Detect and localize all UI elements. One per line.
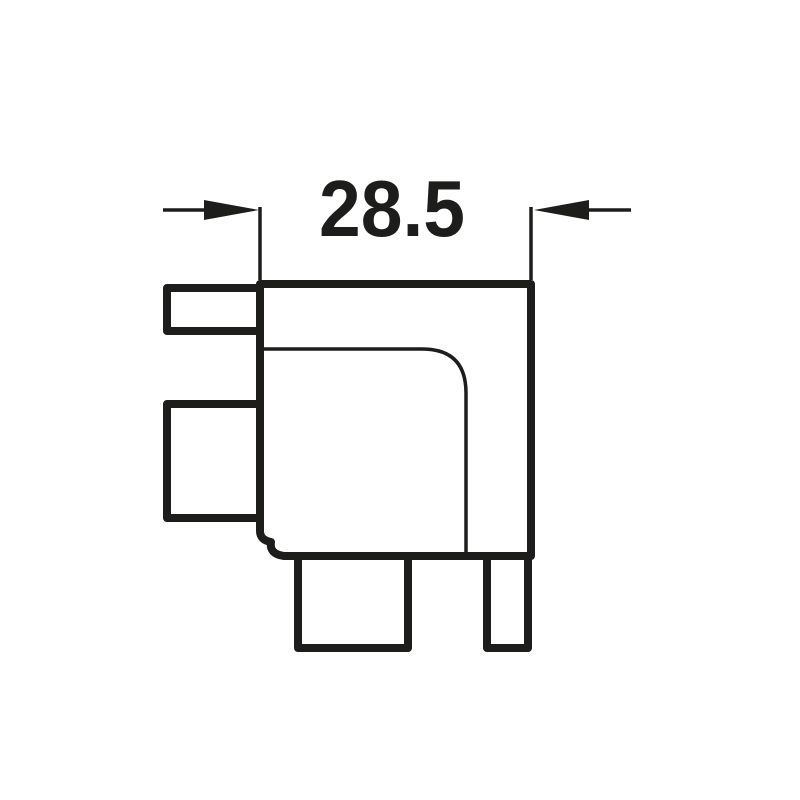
bottom-tab-right xyxy=(487,556,528,648)
bottom-tab-left xyxy=(298,556,408,648)
left-tab-bottom xyxy=(167,404,260,518)
main-body-outline xyxy=(260,284,531,556)
dimension-arrow-right-icon xyxy=(204,200,259,220)
left-tab-top xyxy=(167,288,260,331)
dimension-value: 28.5 xyxy=(319,164,465,253)
drawing-canvas: 28.5 xyxy=(0,0,800,800)
dimension-arrow-left-icon xyxy=(534,200,589,220)
dimension-annotation: 28.5 xyxy=(163,164,631,280)
technical-drawing: 28.5 xyxy=(0,0,800,800)
